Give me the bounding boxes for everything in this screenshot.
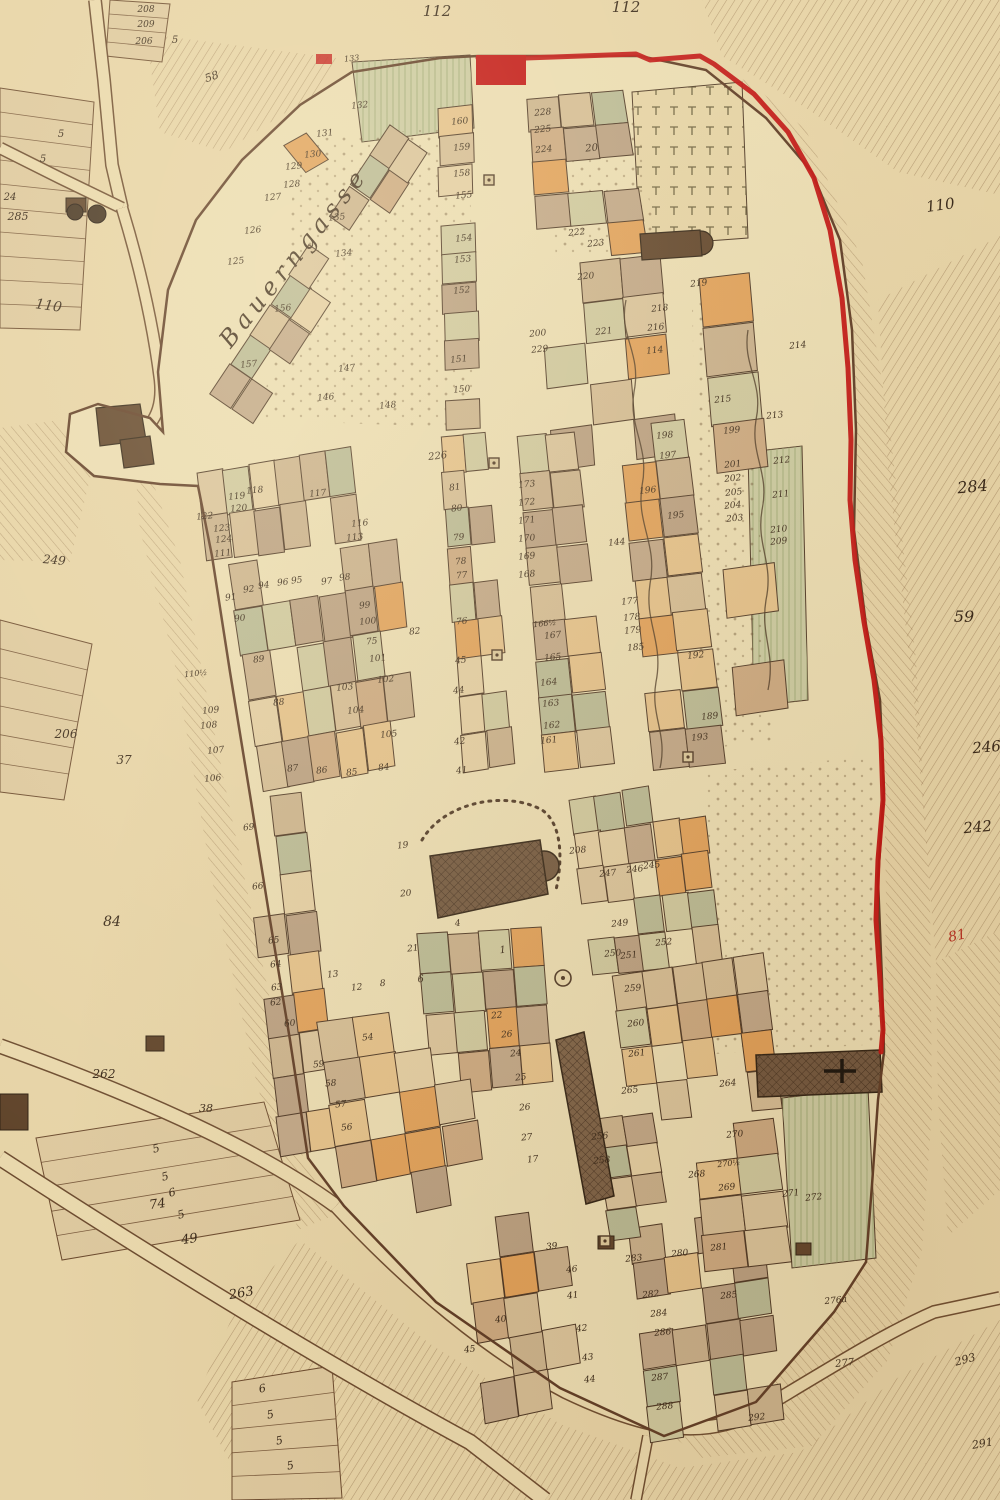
paper-aging-overlay	[0, 0, 1000, 1500]
historic-cadastral-map: Bauerngasse 1121121102845924624281110249…	[0, 0, 1000, 1500]
map-canvas: Bauerngasse 1121121102845924624281110249…	[0, 0, 1000, 1500]
